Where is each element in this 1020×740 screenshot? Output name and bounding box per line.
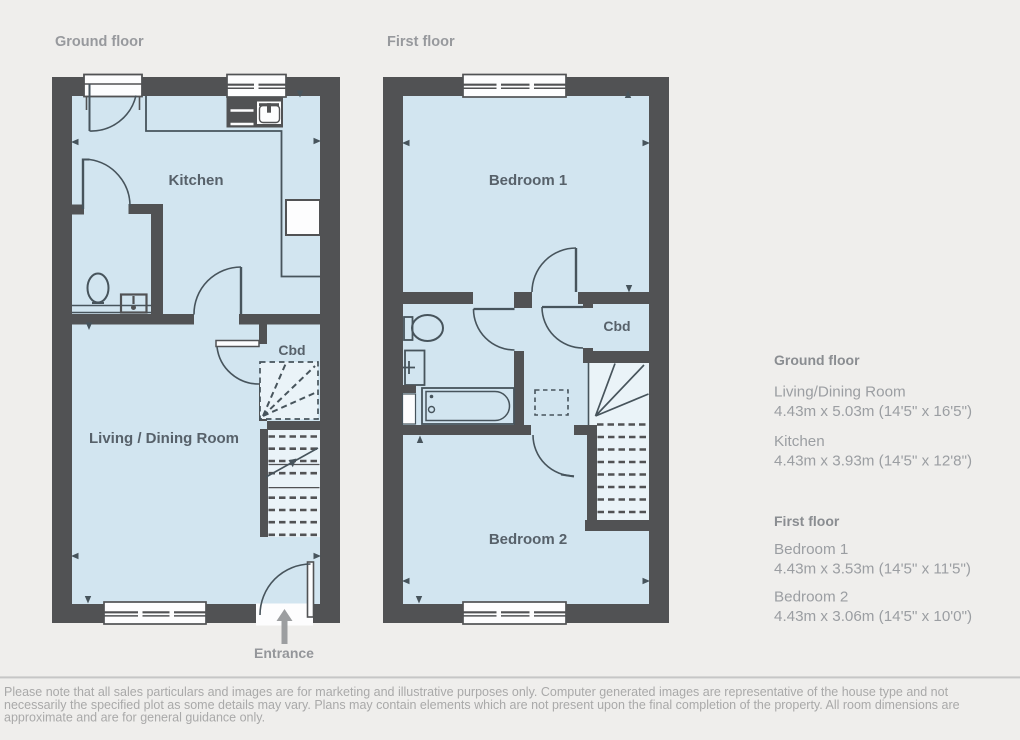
svg-text:Bedroom 1: Bedroom 1	[489, 172, 567, 189]
svg-text:Bedroom 2: Bedroom 2	[489, 531, 567, 548]
svg-text:Kitchen: Kitchen	[774, 433, 825, 450]
svg-text:Kitchen: Kitchen	[168, 172, 223, 189]
svg-text:approximate and are for genera: approximate and are for general guidance…	[4, 711, 265, 725]
svg-text:4.43m x 3.06m (14'5" x 10'0"): 4.43m x 3.06m (14'5" x 10'0")	[774, 608, 972, 625]
svg-text:Bedroom 1: Bedroom 1	[774, 541, 848, 558]
svg-text:4.43m x 3.53m (14'5" x 11'5"): 4.43m x 3.53m (14'5" x 11'5")	[774, 561, 971, 578]
svg-text:First floor: First floor	[774, 513, 840, 529]
svg-text:Living/Dining Room: Living/Dining Room	[774, 384, 906, 401]
svg-text:4.43m x 3.93m (14'5" x 12'8"): 4.43m x 3.93m (14'5" x 12'8")	[774, 453, 972, 470]
svg-text:Bedroom 2: Bedroom 2	[774, 589, 848, 606]
svg-text:Ground floor: Ground floor	[774, 352, 860, 368]
svg-text:Living / Dining Room: Living / Dining Room	[89, 430, 239, 447]
svg-text:Cbd: Cbd	[278, 342, 305, 358]
svg-text:Ground floor: Ground floor	[55, 34, 144, 50]
svg-text:First floor: First floor	[387, 34, 455, 50]
svg-text:4.43m x 5.03m (14'5" x 16'5"): 4.43m x 5.03m (14'5" x 16'5")	[774, 403, 972, 420]
svg-text:Entrance: Entrance	[254, 645, 314, 661]
svg-text:Cbd: Cbd	[603, 318, 630, 334]
